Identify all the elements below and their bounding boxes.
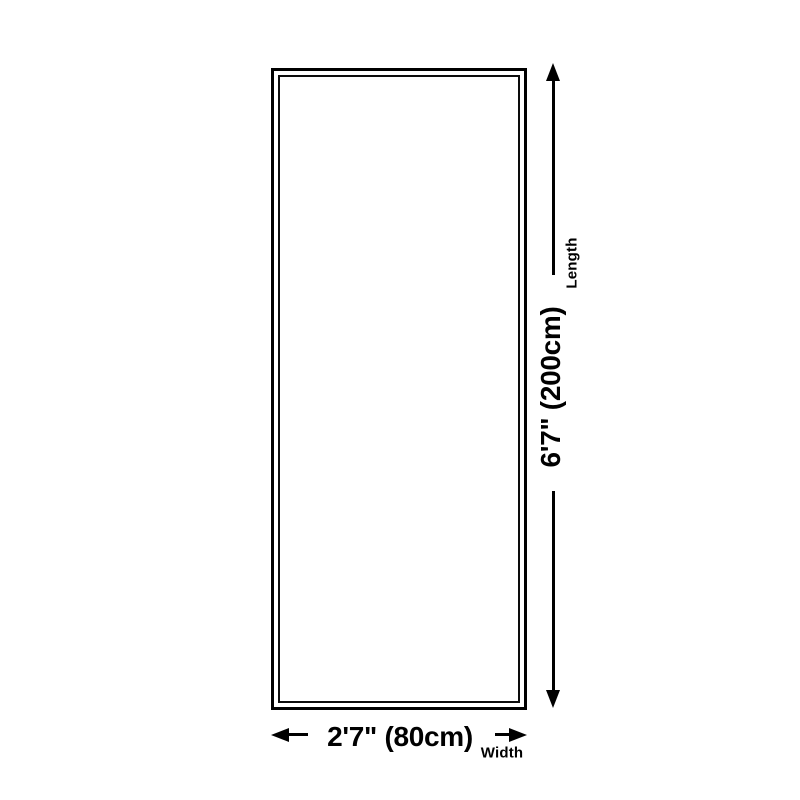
arrow-down-icon: [546, 690, 560, 708]
length-value: 6'7" (200cm): [535, 306, 567, 467]
width-label: Width: [481, 745, 524, 762]
length-line-upper: [552, 79, 555, 275]
width-value: 2'7" (80cm): [327, 721, 473, 753]
product-rectangle: [271, 68, 527, 710]
length-line-lower: [552, 491, 555, 691]
product-rectangle-inner-border: [278, 75, 520, 703]
size-diagram: Length 6'7" (200cm) 2'7" (80cm) Width: [0, 0, 800, 800]
length-label: Length: [564, 237, 581, 288]
width-line-left: [287, 733, 308, 736]
arrow-right-icon: [509, 728, 527, 742]
